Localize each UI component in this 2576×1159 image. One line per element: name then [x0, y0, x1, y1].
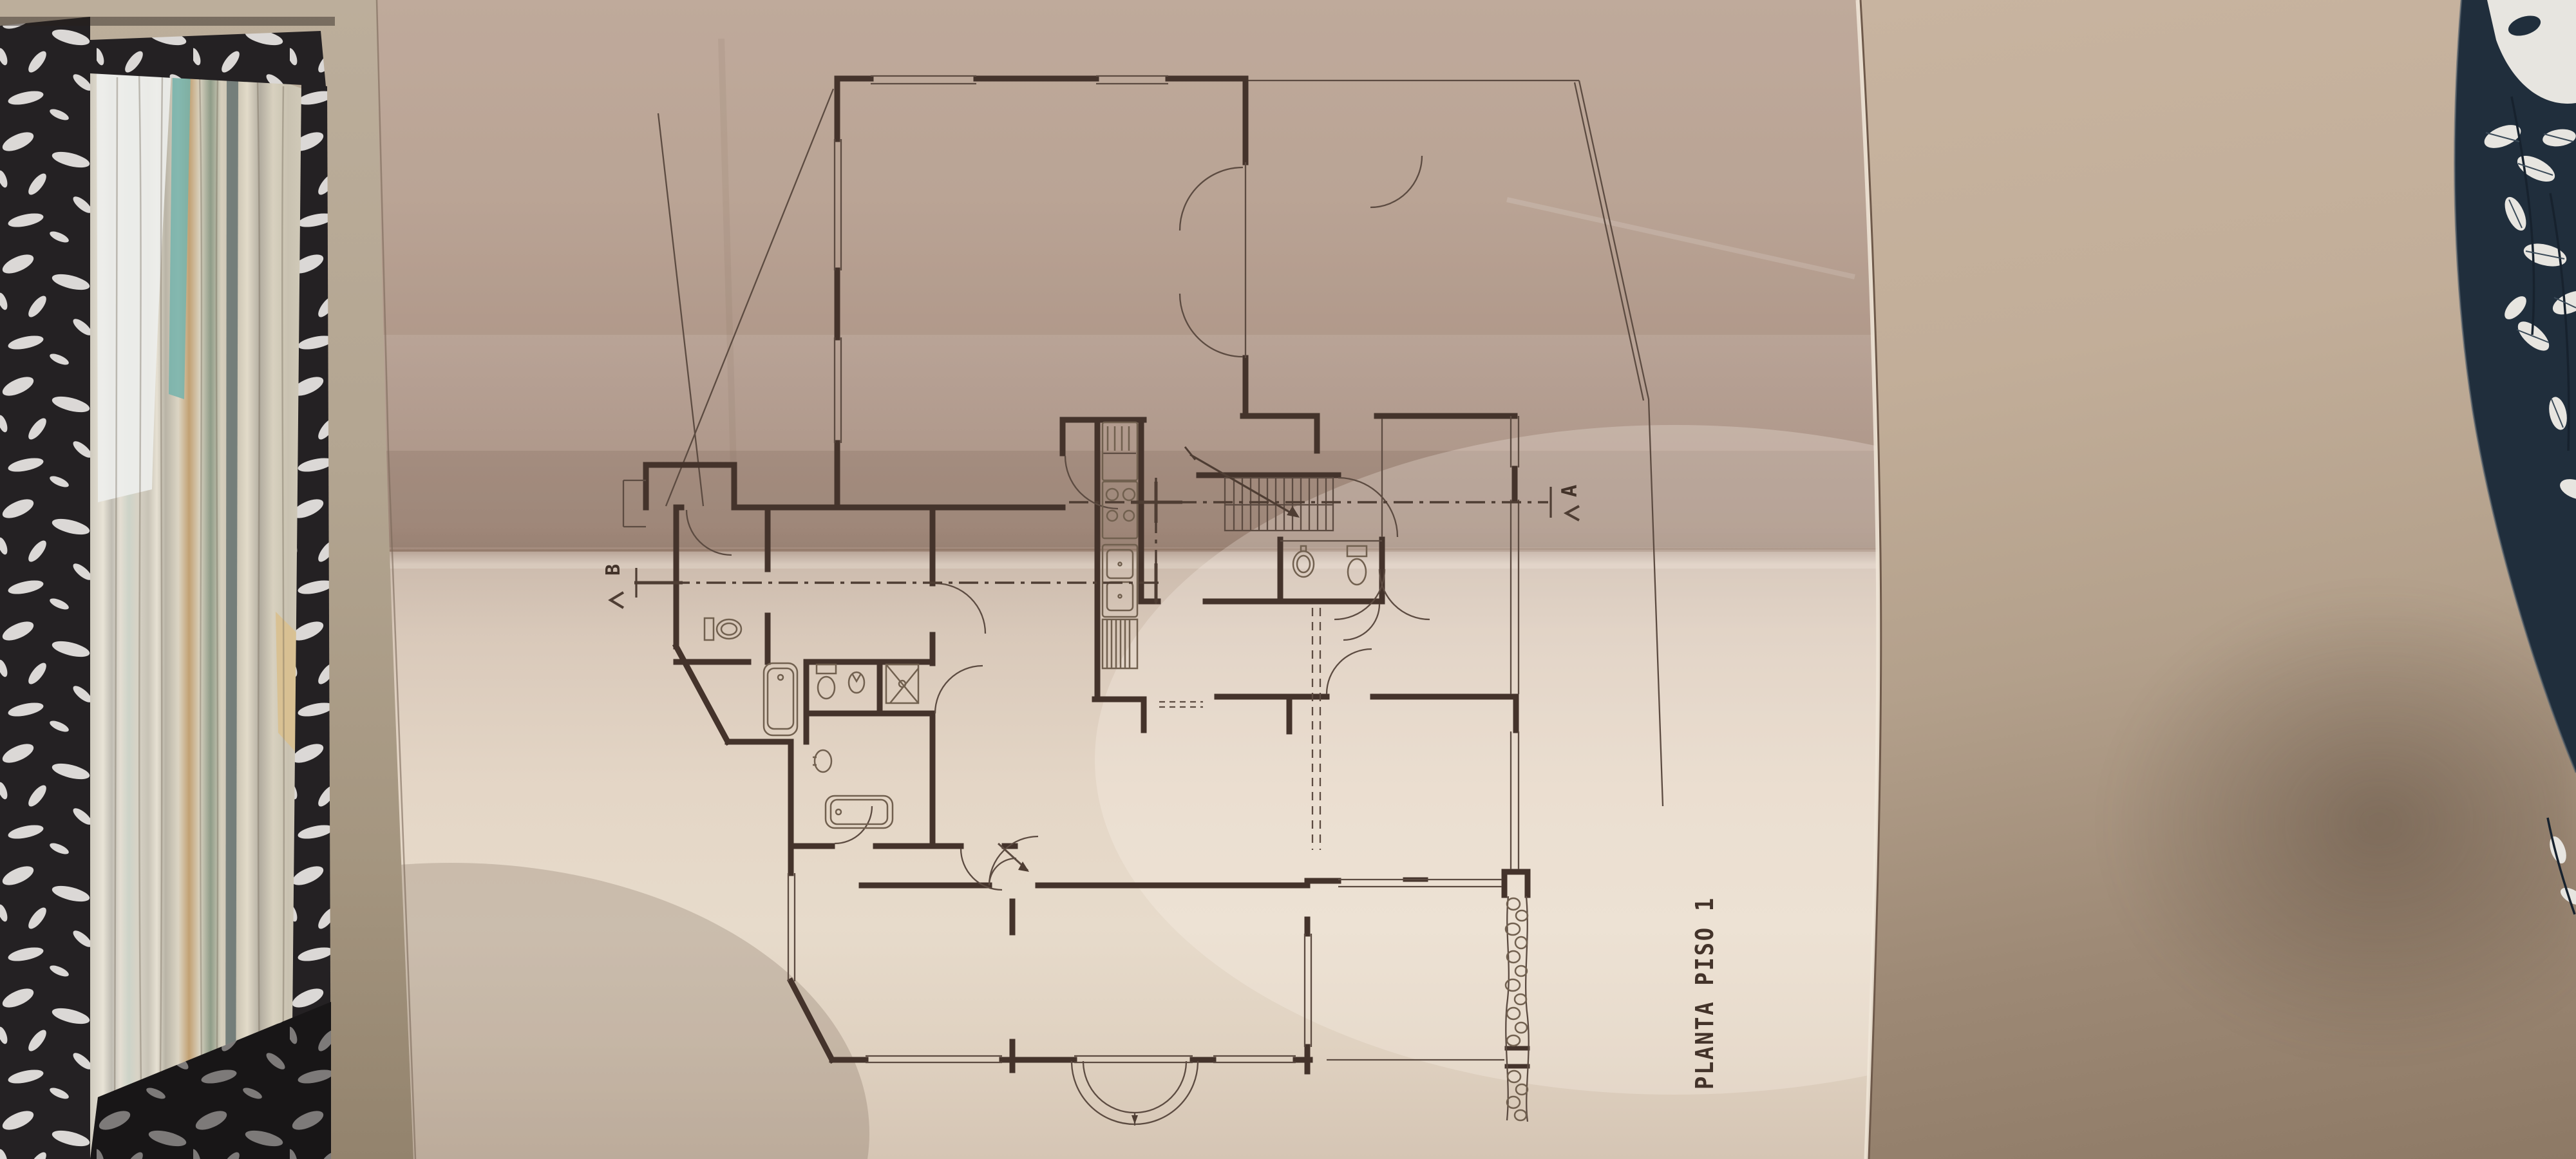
upholstered-chair — [1803, 0, 2576, 1159]
plan-title: PLANTA PISO 1 — [1690, 896, 1719, 1089]
photo-of-floor-plan: A B PLANTA PISO 1 — [0, 0, 2576, 1159]
section-label-a: A — [1557, 485, 1582, 497]
section-label-b: B — [602, 564, 625, 576]
paper-top-shadow — [377, 0, 1879, 335]
